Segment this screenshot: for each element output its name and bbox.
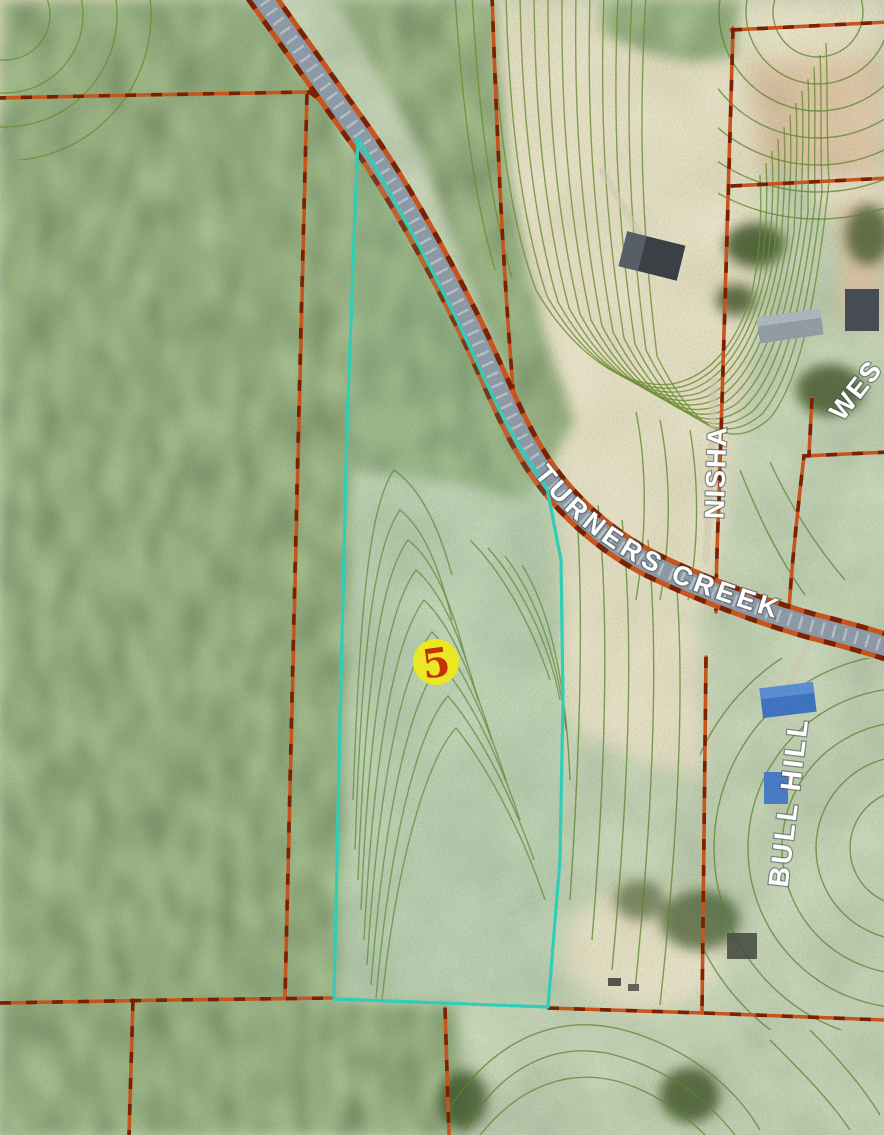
road-label-nisha: NISHA	[699, 424, 732, 519]
parcel-map-viewport[interactable]: TURNERS CREEK NISHA WES BULL HILL 5	[0, 0, 884, 1135]
parcel-map[interactable]: TURNERS CREEK NISHA WES BULL HILL 5	[0, 0, 884, 1135]
photo-grain	[0, 0, 884, 1135]
